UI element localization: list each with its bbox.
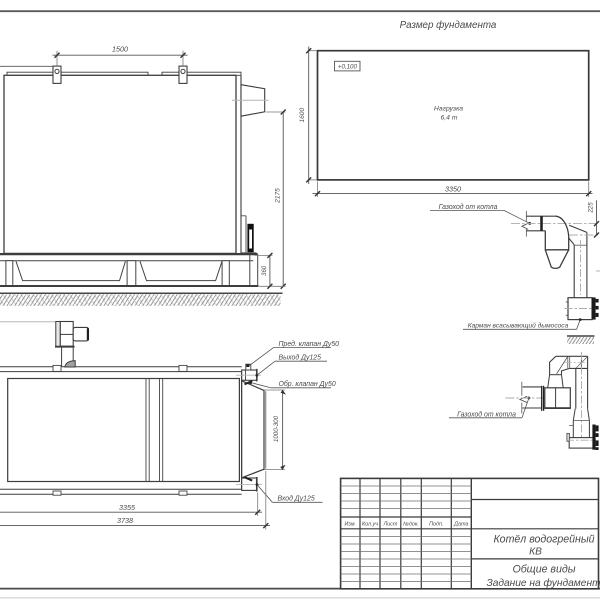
svg-text:Изм.: Изм. (345, 521, 357, 527)
svg-text:КВ: КВ (529, 547, 542, 558)
svg-text:Карман всасывающий дымососа: Карман всасывающий дымососа (468, 321, 569, 329)
svg-text:Выход Ду125: Выход Ду125 (279, 353, 322, 361)
svg-text:3738: 3738 (117, 516, 133, 525)
svg-text:225: 225 (587, 202, 594, 214)
svg-text:1600: 1600 (299, 108, 306, 123)
svg-text:Общие виды: Общие виды (512, 564, 575, 576)
svg-text:Газоход от котла: Газоход от котла (439, 203, 498, 211)
svg-text:Газоход от котла: Газоход от котла (457, 410, 516, 418)
svg-text:2175: 2175 (275, 188, 282, 204)
svg-text:Лист: Лист (382, 521, 397, 527)
svg-text:Задание на фундамент: Задание на фундамент (486, 577, 600, 589)
svg-text:6,4 т: 6,4 т (441, 115, 458, 122)
svg-text:3350: 3350 (445, 184, 461, 193)
svg-text:Размер фундамента: Размер фундамента (400, 20, 497, 31)
svg-text:Котёл водогрейный: Котёл водогрейный (493, 534, 594, 546)
svg-text:№док.: №док. (403, 521, 419, 527)
svg-text:1000-300: 1000-300 (273, 415, 280, 442)
svg-text:360: 360 (262, 265, 268, 276)
svg-text:Дата: Дата (453, 521, 468, 527)
svg-text:Пред. клапан Ду50: Пред. клапан Ду50 (279, 340, 340, 348)
svg-text:Нагрузка: Нагрузка (434, 106, 463, 113)
svg-text:+0,100: +0,100 (338, 64, 358, 71)
svg-text:1500: 1500 (112, 45, 128, 54)
svg-text:Подп.: Подп. (429, 521, 443, 527)
svg-text:Вход Ду125: Вход Ду125 (278, 495, 315, 503)
svg-text:Кол.уч: Кол.уч (362, 521, 378, 527)
svg-text:3355: 3355 (119, 503, 136, 512)
svg-text:Обр. клапан Ду50: Обр. клапан Ду50 (279, 380, 336, 388)
